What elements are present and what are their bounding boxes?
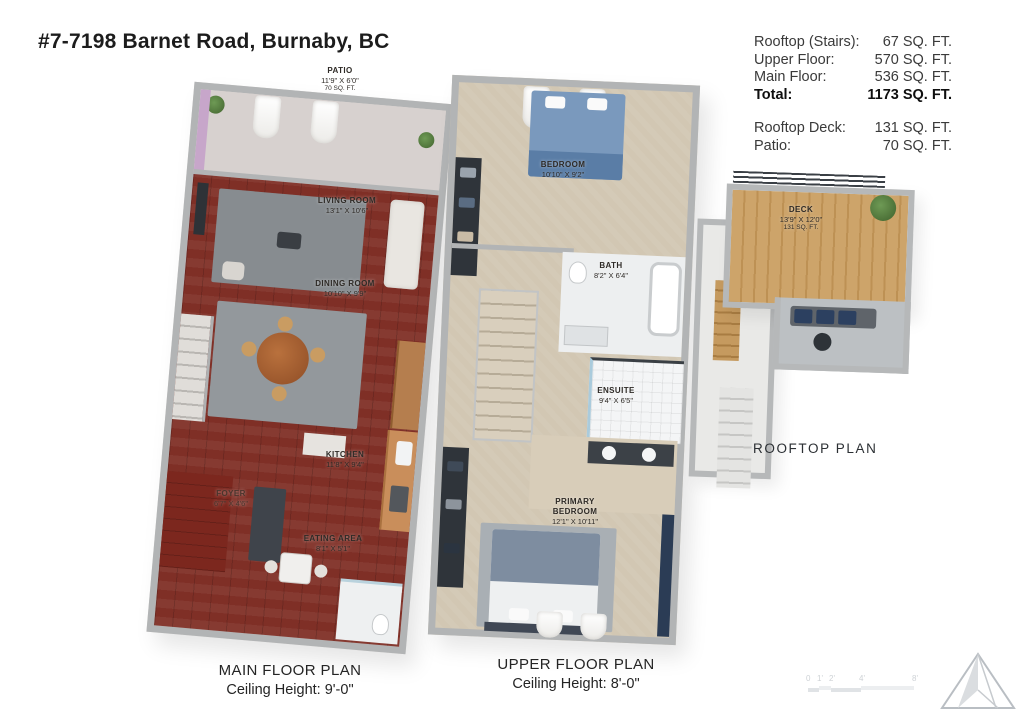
sofa-cushion [838, 310, 856, 325]
area-row-rooftop-deck: Rooftop Deck: 131 SQ. FT. [754, 120, 952, 138]
curtain-icon [536, 611, 563, 638]
closet [451, 157, 482, 276]
room-label-patio: PATIO 11'9" X 6'0" 70 SQ. FT. [321, 66, 359, 94]
scale-tick: 0 [806, 674, 810, 683]
room-label-primary-bedroom: PRIMARY BEDROOM 12'1" X 10'11" [540, 497, 610, 526]
fridge [248, 486, 286, 563]
area-row-main-floor: Main Floor: 536 SQ. FT. [754, 69, 952, 87]
kitchen-sink [395, 441, 413, 466]
sink [602, 446, 617, 461]
stats-divider [754, 104, 952, 120]
curtain-icon [310, 100, 340, 144]
area-row-rooftop-stairs: Rooftop (Stairs): 67 SQ. FT. [754, 34, 952, 52]
scale-tick: 8' [912, 674, 918, 683]
scale-bar: 0 1' 2' 4' 8' [806, 674, 936, 698]
closet-item [459, 197, 475, 208]
armchair [221, 261, 244, 281]
room-label-deck: DECK 13'9" X 12'0" 131 SQ. FT. [780, 205, 822, 233]
pillow [545, 96, 566, 109]
room-label-bedroom: BEDROOM 10'10" X 9'2" [541, 160, 586, 179]
area-label: Patio: [754, 138, 791, 156]
area-summary: Rooftop (Stairs): 67 SQ. FT. Upper Floor… [754, 34, 952, 155]
upper-floor-caption: UPPER FLOOR PLAN Ceiling Height: 8'-0" [466, 656, 686, 692]
area-row-total: Total: 1173 SQ. FT. [754, 87, 952, 105]
staircase [472, 288, 539, 442]
rooftop-lounge-floor [772, 297, 910, 374]
pillow [587, 98, 608, 111]
area-value: 570 SQ. FT. [875, 52, 952, 70]
area-row-upper-floor: Upper Floor: 570 SQ. FT. [754, 52, 952, 70]
area-row-patio: Patio: 70 SQ. FT. [754, 138, 952, 156]
scale-tick: 2' [829, 674, 835, 683]
closet-item [447, 461, 463, 472]
room-label-ensuite: ENSUITE 9'4" X 6'5" [597, 386, 634, 405]
area-label: Rooftop Deck: [754, 120, 846, 138]
pillow [509, 608, 530, 621]
area-label: Main Floor: [754, 69, 827, 87]
room-label-bath: BATH 8'2" X 6'4" [594, 261, 628, 280]
bed-throw [490, 529, 600, 586]
area-label: Total: [754, 87, 792, 105]
area-label: Upper Floor: [754, 52, 835, 70]
bath-vanity [565, 326, 608, 346]
room-label-dining-room: DINING ROOM 10'10" X 9'9" [315, 279, 375, 298]
ensuite-vanity [588, 441, 675, 467]
north-arrow-icon [938, 650, 1018, 714]
curtain-icon [580, 613, 607, 640]
area-value: 67 SQ. FT. [883, 34, 952, 52]
scale-segment [819, 686, 831, 690]
sofa-cushion [816, 310, 834, 325]
coffee-table [276, 232, 301, 250]
closet-item [460, 167, 476, 178]
sink [642, 447, 657, 462]
main-floor-plan [146, 82, 453, 655]
scale-segment [861, 686, 914, 690]
scale-segment [808, 688, 819, 692]
area-value: 536 SQ. FT. [875, 69, 952, 87]
eating-area-table [279, 553, 311, 584]
coffee-table [813, 333, 832, 352]
room-label-foyer: FOYER 6'7" X 4'6" [214, 489, 248, 508]
area-value: 131 SQ. FT. [875, 120, 952, 138]
room-label-living-room: LIVING ROOM 13'1" X 10'6" [318, 196, 376, 215]
stove [389, 485, 409, 512]
area-value: 70 SQ. FT. [883, 138, 952, 156]
closet-item [457, 231, 473, 242]
rooftop-sofa [790, 306, 877, 329]
floor-plan-sheet: #7-7198 Barnet Road, Burnaby, BC Rooftop… [0, 0, 1024, 724]
bathtub [647, 262, 682, 337]
main-floor-caption: MAIN FLOOR PLAN Ceiling Height: 9'-0" [180, 662, 400, 698]
sofa-cushion [794, 309, 812, 324]
curtain-icon [252, 95, 282, 139]
scale-tick: 1' [817, 674, 823, 683]
rooftop-caption: ROOFTOP PLAN [753, 441, 877, 456]
stair-run-lower [716, 387, 753, 488]
area-label: Rooftop (Stairs): [754, 34, 860, 52]
toilet [569, 262, 586, 283]
room-label-eating-area: EATING AREA 8'1" X 5'1" [304, 534, 363, 553]
foyer-floor [159, 471, 233, 572]
room-label-kitchen: KITCHEN 11'8" X 9'4" [326, 450, 364, 469]
closet-item [443, 543, 459, 554]
scale-segment [831, 688, 861, 692]
powder-room-floor [336, 581, 403, 644]
area-value: 1173 SQ. FT. [867, 87, 952, 105]
scale-tick: 4' [859, 674, 865, 683]
closet-item [445, 499, 461, 510]
page-title: #7-7198 Barnet Road, Burnaby, BC [38, 30, 389, 54]
